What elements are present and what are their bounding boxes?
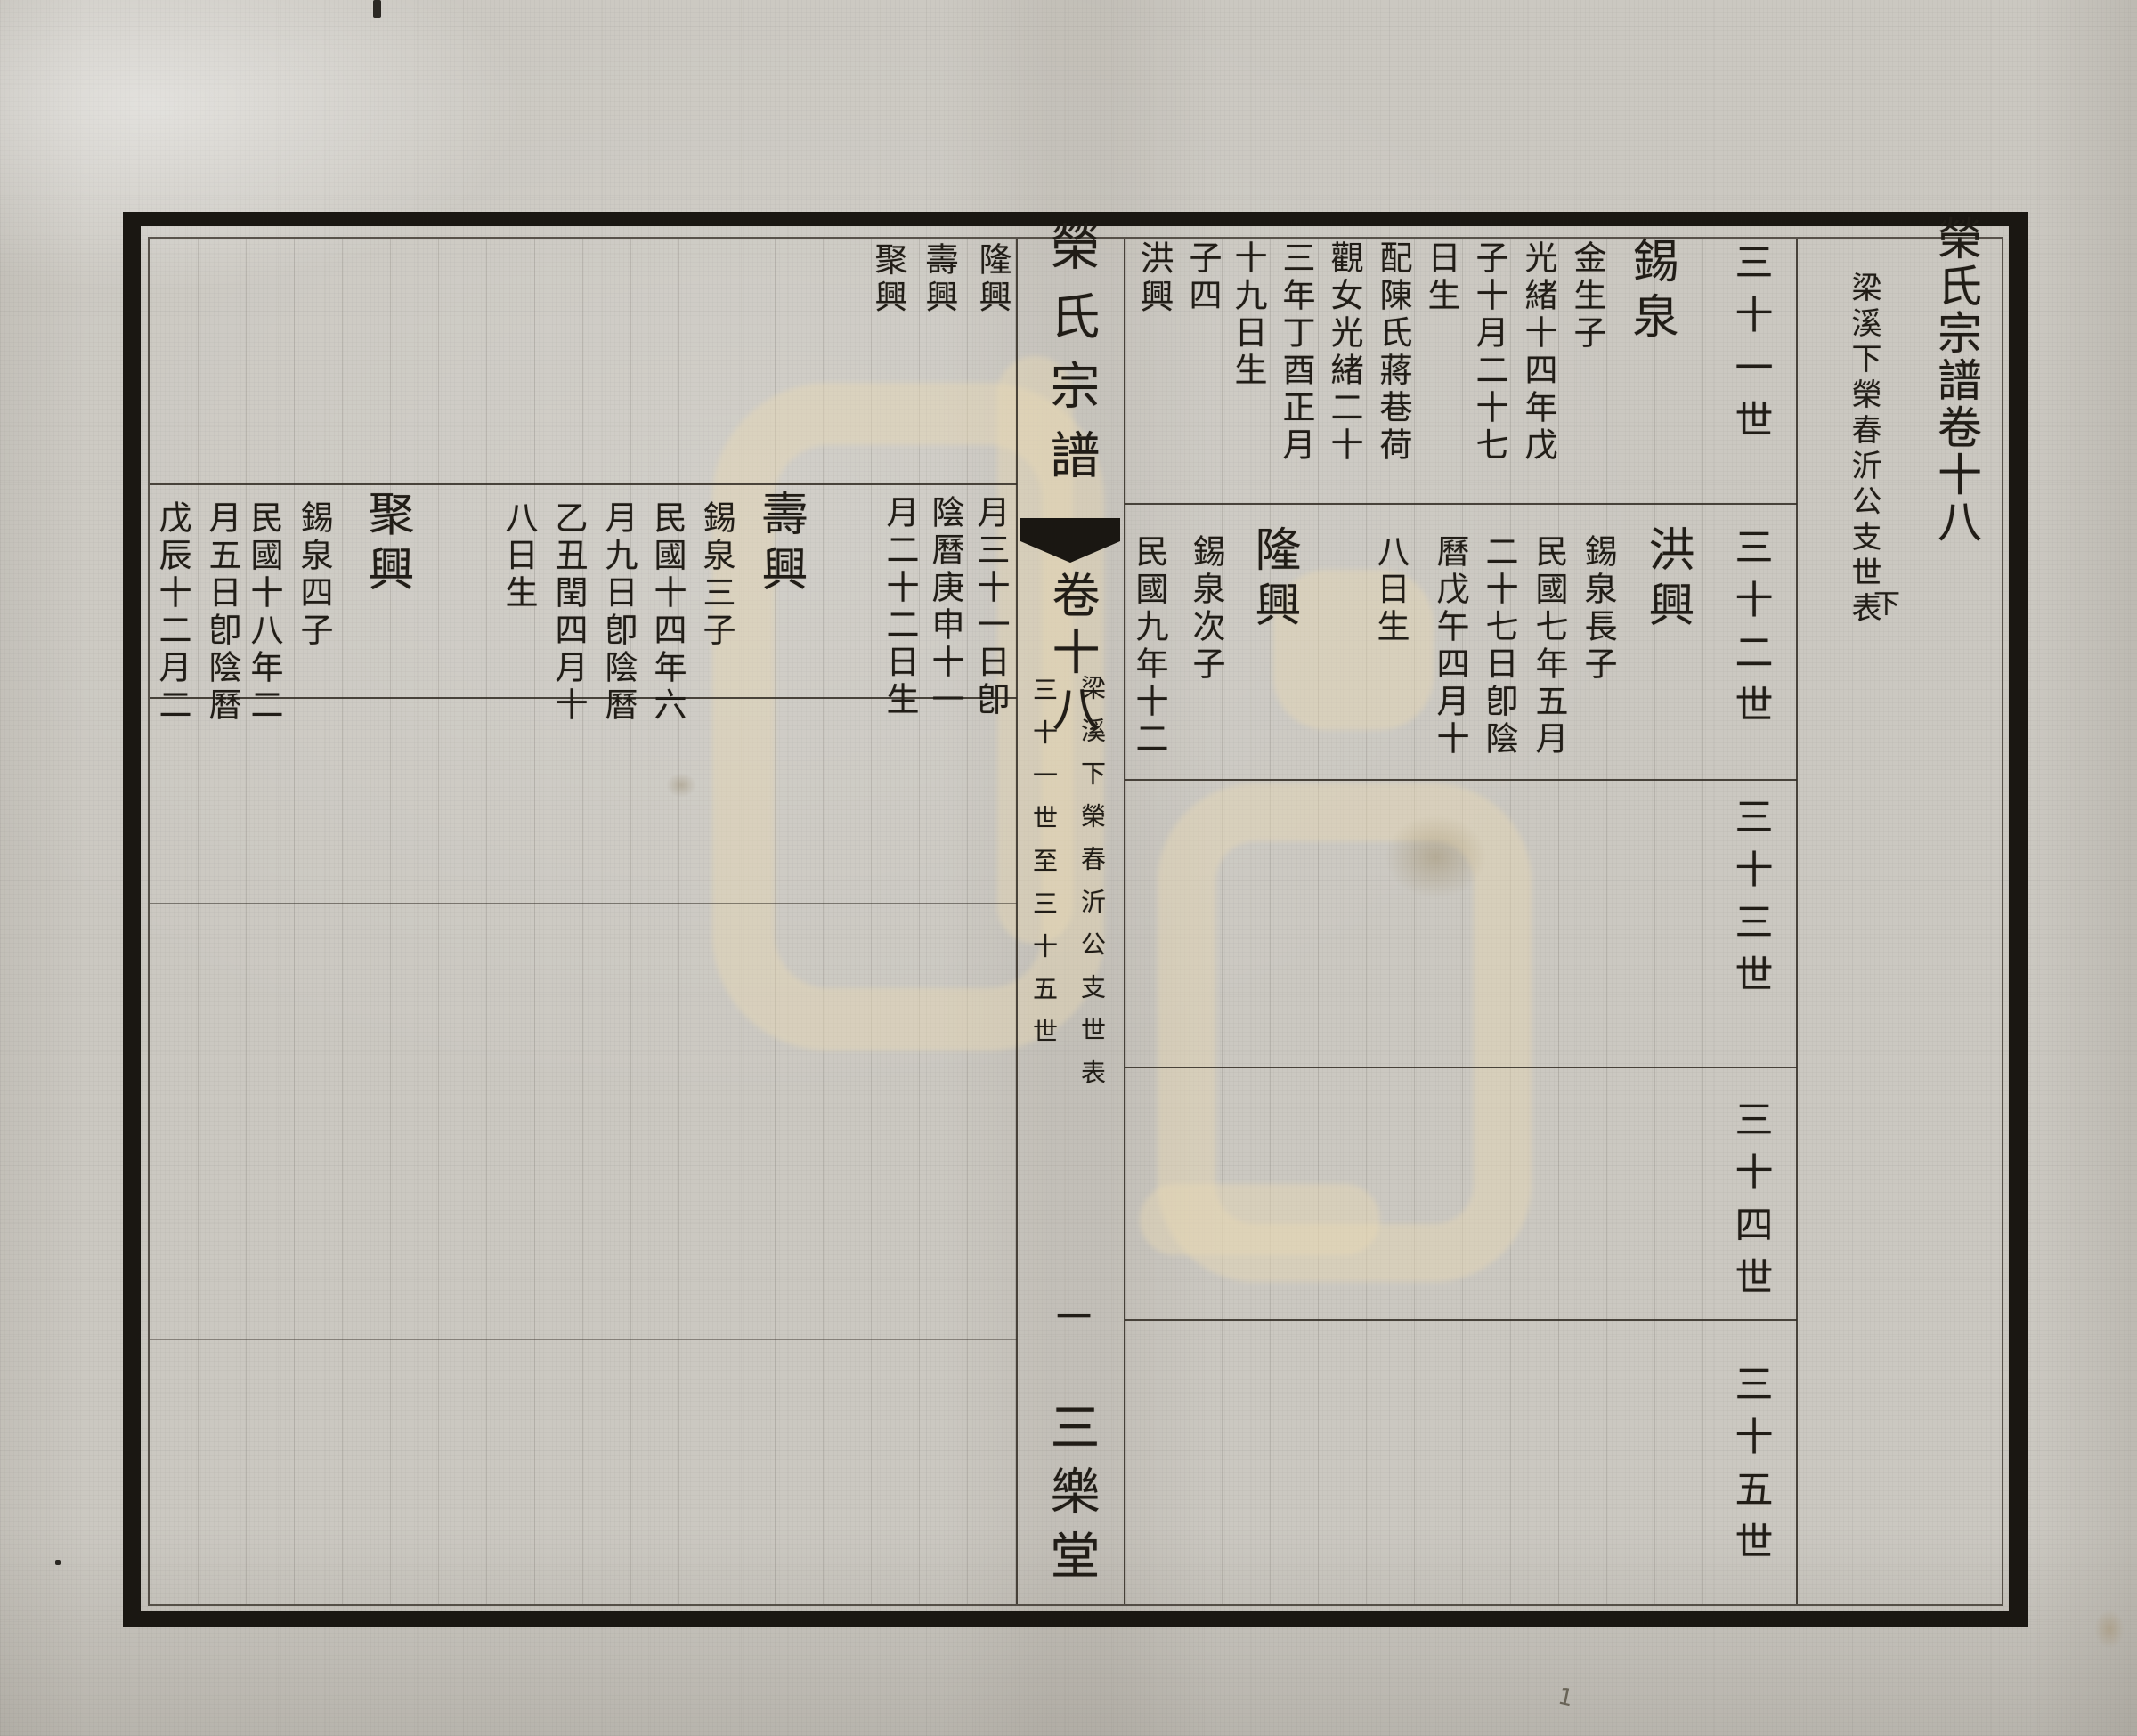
row-rule	[150, 1115, 1017, 1115]
entry-text-column: 配陳氏蔣巷荷	[1377, 240, 1410, 465]
entry-text-column: 民國十四年六	[651, 500, 684, 725]
entry-text-column: 子十月二十七	[1473, 240, 1506, 465]
entry-text-column: 戊辰十二月二	[156, 500, 189, 725]
generation-label-33: 三十三世	[1731, 797, 1769, 1007]
row-rule	[1125, 503, 1797, 505]
entry-text-column: 十九日生	[1231, 240, 1264, 390]
entry-text-column: 錫泉次子	[1190, 534, 1223, 684]
generation-column-rule	[1796, 239, 1798, 1604]
entry-text-column: 月五日卽陰曆	[206, 500, 239, 725]
entry-text-column: 民國十八年二	[248, 500, 280, 725]
entry-text-column: 日生	[1425, 240, 1458, 315]
entry-text-column: 光緒十四年戊	[1522, 240, 1555, 465]
spine-right-rule	[1124, 239, 1125, 1604]
entry-text-column: 八日生	[502, 500, 535, 612]
row-rule	[150, 483, 1017, 485]
entry-text-column: 觀女光緒二十	[1328, 240, 1361, 465]
son-name: 隆興	[976, 242, 1009, 317]
entry-name: 隆興	[1250, 525, 1296, 636]
entry-text-column: 乙丑閏四月十	[552, 500, 585, 725]
ink-speck	[55, 1560, 61, 1565]
spine-hall-name: 三樂堂	[1045, 1401, 1095, 1594]
row-rule	[1125, 1319, 1797, 1321]
page-header-subtitle: 梁溪下榮春沂公支世表	[1849, 272, 1879, 628]
row-rule	[150, 1339, 1017, 1340]
row-rule	[1125, 1067, 1797, 1068]
spine-left-rule	[1016, 239, 1018, 1604]
entry-text-column: 八日生	[1374, 534, 1407, 646]
entry-text-column: 曆戊午四月十	[1434, 534, 1467, 758]
entry-text-column: 月三十一日卽	[974, 495, 1007, 719]
row-rule	[1125, 779, 1797, 781]
entry-text-column: 子四	[1186, 240, 1219, 315]
scanned-genealogy-spread: 榮氏宗譜卷十八 梁溪下榮春沂公支世表 下 三十一世 三十二世 三十三世 三十四世…	[0, 0, 2137, 1736]
spine-page-number: 一	[1052, 1298, 1088, 1334]
son-name: 聚興	[872, 242, 905, 317]
entry-name: 洪興	[1644, 525, 1690, 636]
spine-title: 榮氏宗譜	[1045, 221, 1095, 499]
entry-text-column: 民國九年十二	[1133, 534, 1166, 758]
spine-generation-range: 三十一世至三十五世	[1031, 677, 1056, 1061]
generation-label-35: 三十五世	[1731, 1364, 1769, 1574]
page-header-title: 榮氏宗譜卷十八	[1934, 215, 1979, 546]
ink-speck	[373, 0, 381, 18]
entry-text-column: 陰曆庚申十一	[929, 495, 962, 719]
son-name: 壽興	[922, 242, 955, 317]
son-name: 洪興	[1137, 240, 1171, 317]
entry-text-column: 錫泉四子	[297, 500, 330, 650]
entry-text-column: 錫泉長子	[1581, 534, 1614, 684]
entry-name: 錫泉	[1628, 237, 1674, 347]
entry-text-column: 二十七日卽陰	[1483, 534, 1515, 758]
entry-text-column: 月二十二日生	[883, 495, 916, 719]
entry-text-column: 民國七年五月	[1532, 534, 1565, 758]
entry-text-column: 三年丁酉正月	[1280, 240, 1312, 465]
generation-label-32: 三十二世	[1731, 527, 1769, 737]
generation-label-31: 三十一世	[1731, 242, 1769, 452]
generation-label-34: 三十四世	[1731, 1099, 1769, 1310]
entry-name: 聚興	[363, 490, 410, 600]
entry-text-column: 月九日卽陰曆	[602, 500, 635, 725]
spine-branch-note: 梁溪下榮春沂公支世表	[1079, 675, 1104, 1102]
page-header-part-label: 下	[1870, 589, 1897, 616]
entry-text-column: 錫泉三子	[700, 500, 733, 650]
entry-name: 壽興	[757, 490, 803, 600]
entry-text-column: 金生子	[1571, 240, 1604, 353]
row-rule	[150, 903, 1017, 904]
paper-stain	[2094, 1610, 2125, 1649]
